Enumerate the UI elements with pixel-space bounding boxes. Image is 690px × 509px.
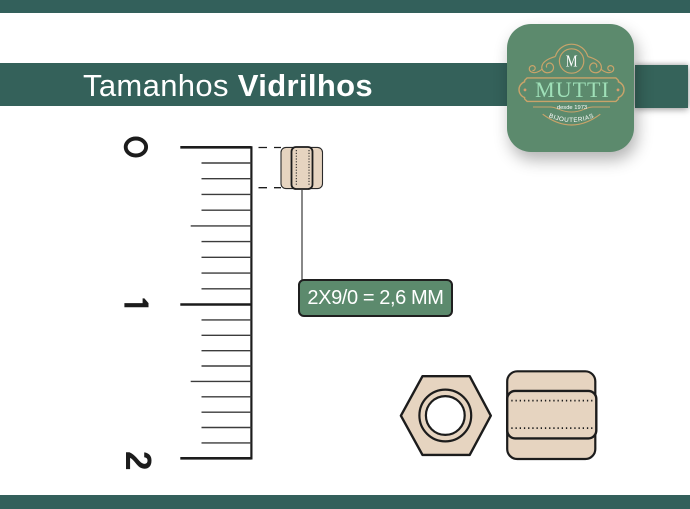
svg-text:BIJOUTERIAS: BIJOUTERIAS [548,112,595,124]
svg-text:desde 1973: desde 1973 [557,105,587,111]
svg-text:M: M [566,52,578,71]
svg-text:MUTTI: MUTTI [535,77,610,102]
svg-text:2: 2 [118,451,157,470]
